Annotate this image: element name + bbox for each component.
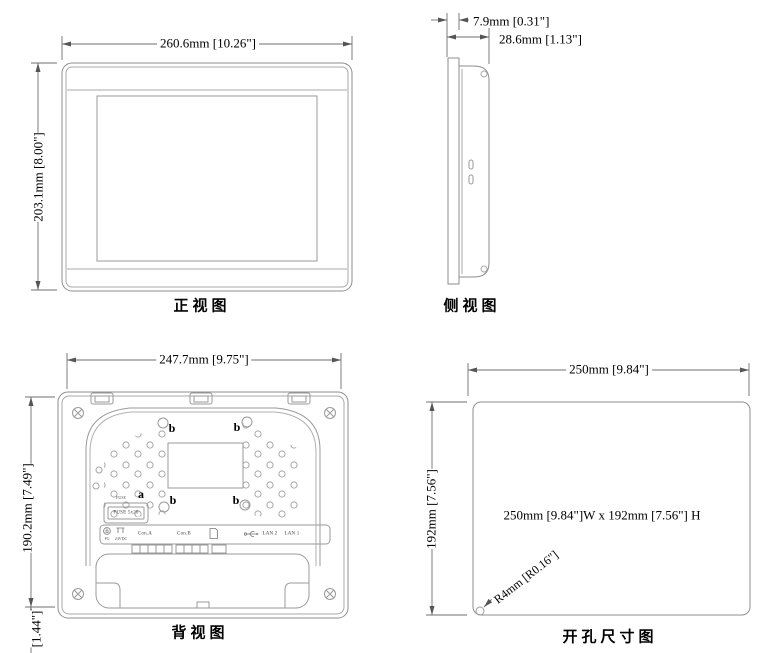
side-view-drawing (431, 13, 489, 284)
port-label-con-b: Con.B (177, 532, 191, 537)
bottom-recess (96, 554, 309, 608)
front-height-dim: 203.1mm [8.00"] (30, 132, 47, 221)
callout-b: b (170, 494, 177, 506)
side-body-outline (448, 58, 489, 284)
fuse-caption: FUSE (116, 496, 126, 500)
ground-icon (104, 528, 111, 535)
back-view-drawing (25, 353, 348, 653)
line-art (0, 0, 760, 653)
cutout-height-dim: 192mm [7.56"] (423, 469, 440, 549)
front-panel-outline (62, 63, 352, 291)
port-label-lan1: LAN 1 (284, 532, 299, 537)
usb-icon (244, 532, 258, 537)
front-dimension-lines (31, 36, 352, 290)
fuse-rating-label: FUSE 5x20 (113, 511, 138, 516)
front-width-dim: 260.6mm [10.26"] (157, 37, 259, 50)
power-icon (117, 528, 125, 533)
mounting-clips (91, 393, 310, 404)
callout-b: b (233, 494, 240, 506)
port-label-lan2: LAN 2 (262, 532, 277, 537)
vent-holes-right (238, 421, 302, 520)
side-bezel-dim: 7.9mm [0.31"] (471, 15, 551, 28)
callout-a: a (138, 488, 144, 500)
back-view-title: 背视图 (171, 627, 228, 642)
side-view-title: 侧视图 (443, 300, 500, 315)
cutout-size-note: 250mm [9.84"]W x 192mm [7.56"] H (503, 509, 700, 522)
dimension-drawing-page: 260.6mm [10.26"] 203.1mm [8.00"] 正视图 7.9… (0, 0, 760, 653)
cutout-dimension-lines (426, 363, 749, 615)
callout-b: b (234, 421, 241, 433)
back-bottom-dim: [1.44"] (28, 611, 45, 648)
callout-b: b (169, 422, 176, 434)
back-width-dim: 247.7mm [9.75"] (156, 353, 251, 366)
back-height-dim: 190.2mm [7.49"] (19, 463, 36, 552)
nameplate-area (168, 443, 243, 488)
front-view-title: 正视图 (173, 300, 230, 315)
front-view-drawing (31, 36, 352, 291)
cutout-view-drawing (426, 363, 750, 615)
port-label-fg: FG (104, 537, 109, 541)
sd-card-icon (210, 529, 218, 539)
side-depth-dim: 28.6mm [1.13"] (497, 33, 584, 46)
terminal-connectors (132, 545, 226, 553)
port-label-con-a: Con.A (138, 532, 152, 537)
port-label-24vdc: 24VDC (115, 537, 127, 541)
back-panel-outline (58, 392, 348, 618)
front-screen-area (97, 96, 317, 261)
cutout-width-dim: 250mm [9.84"] (566, 363, 652, 376)
cutout-view-title: 开孔尺寸图 (562, 631, 657, 646)
vent-holes-left (104, 421, 168, 520)
